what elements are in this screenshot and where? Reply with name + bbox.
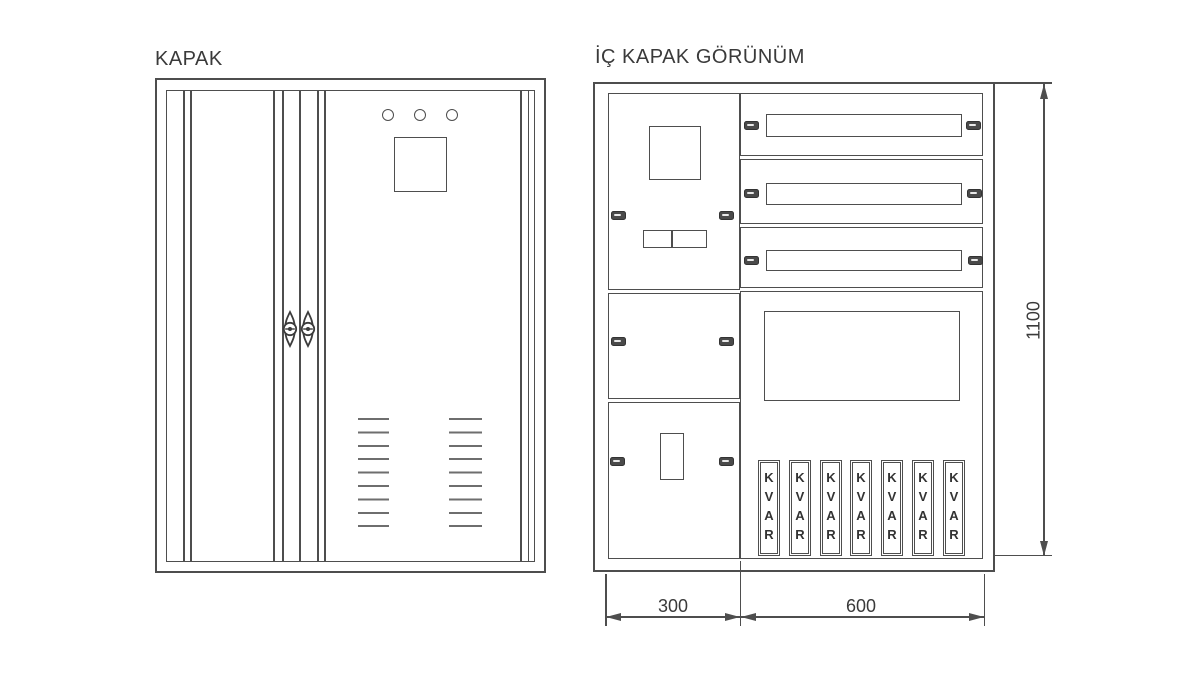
right-view-title: İÇ KAPAK GÖRÜNÜM <box>595 46 805 69</box>
kvar-strip-inner: KVAR <box>822 462 840 554</box>
kvar-strip: KVAR <box>789 460 811 556</box>
kvar-strip-label: KVAR <box>763 470 776 546</box>
left-column-top-panel <box>608 93 740 290</box>
kvar-strip-label: KVAR <box>825 470 838 546</box>
dim-arrow-icon <box>1040 84 1048 99</box>
latch-icon <box>719 211 734 220</box>
left-column-bottom-panel <box>608 402 740 559</box>
vent-slats-right <box>449 418 482 528</box>
kvar-strip-inner: KVAR <box>760 462 778 554</box>
vent-slats-left <box>358 418 389 528</box>
switch-cutout-divider <box>671 230 673 248</box>
kvar-strip: KVAR <box>820 460 842 556</box>
latch-icon <box>719 457 734 466</box>
dim-label-height: 1100 <box>1024 291 1045 351</box>
dim-arrow-icon <box>725 613 740 621</box>
technical-drawing-page: KAPAK İÇ KAPAK GÖRÜNÜM <box>0 0 1200 673</box>
dim-arrow-icon <box>969 613 984 621</box>
kvar-strip-inner: KVAR <box>945 462 963 554</box>
meter-window <box>649 126 701 180</box>
dim-label-left-width: 300 <box>640 596 706 617</box>
dim-label-right-width: 600 <box>828 596 894 617</box>
switch-cutout <box>643 230 707 248</box>
door-stile-line <box>324 90 326 562</box>
door-stile-line <box>273 90 275 562</box>
kvar-strip-inner: KVAR <box>914 462 932 554</box>
latch-icon <box>744 189 759 198</box>
latch-icon <box>968 256 983 265</box>
indicator-hole-icon <box>446 109 458 121</box>
viewing-window <box>394 137 447 192</box>
kvar-strip-label: KVAR <box>855 470 868 546</box>
latch-icon <box>719 337 734 346</box>
cam-lock-icon <box>300 310 316 348</box>
kvar-strip-inner: KVAR <box>883 462 901 554</box>
left-column-middle-panel <box>608 293 740 399</box>
kvar-strip-inner: KVAR <box>791 462 809 554</box>
latch-icon <box>967 189 982 198</box>
controller-window <box>764 311 960 401</box>
kvar-strip: KVAR <box>943 460 965 556</box>
kvar-strip: KVAR <box>850 460 872 556</box>
latch-icon <box>744 121 759 130</box>
kvar-strip: KVAR <box>912 460 934 556</box>
breaker-row-cutout <box>766 250 962 271</box>
latch-icon <box>611 337 626 346</box>
kvar-strip: KVAR <box>758 460 780 556</box>
door-stile-line <box>520 90 522 562</box>
latch-icon <box>610 457 625 466</box>
kvar-strip-label: KVAR <box>886 470 899 546</box>
dim-arrow-icon <box>606 613 621 621</box>
door-stile-line <box>190 90 192 562</box>
dim-arrow-icon <box>1040 541 1048 556</box>
indicator-hole-icon <box>414 109 426 121</box>
cam-lock-icon <box>282 310 298 348</box>
kvar-strip-label: KVAR <box>948 470 961 546</box>
door-stile-line <box>528 90 530 562</box>
kvar-strip-label: KVAR <box>917 470 930 546</box>
door-stile-line <box>317 90 319 562</box>
latch-icon <box>966 121 981 130</box>
indicator-hole-icon <box>382 109 394 121</box>
kvar-strip-inner: KVAR <box>852 462 870 554</box>
latch-icon <box>744 256 759 265</box>
door-stile-line <box>183 90 185 562</box>
breaker-row-cutout <box>766 183 962 205</box>
kvar-strip: KVAR <box>881 460 903 556</box>
kvar-strip-label: KVAR <box>794 470 807 546</box>
breaker-row-cutout <box>766 114 962 137</box>
breaker-cutout <box>660 433 684 480</box>
latch-icon <box>611 211 626 220</box>
left-view-title: KAPAK <box>155 48 223 71</box>
dim-arrow-icon <box>741 613 756 621</box>
